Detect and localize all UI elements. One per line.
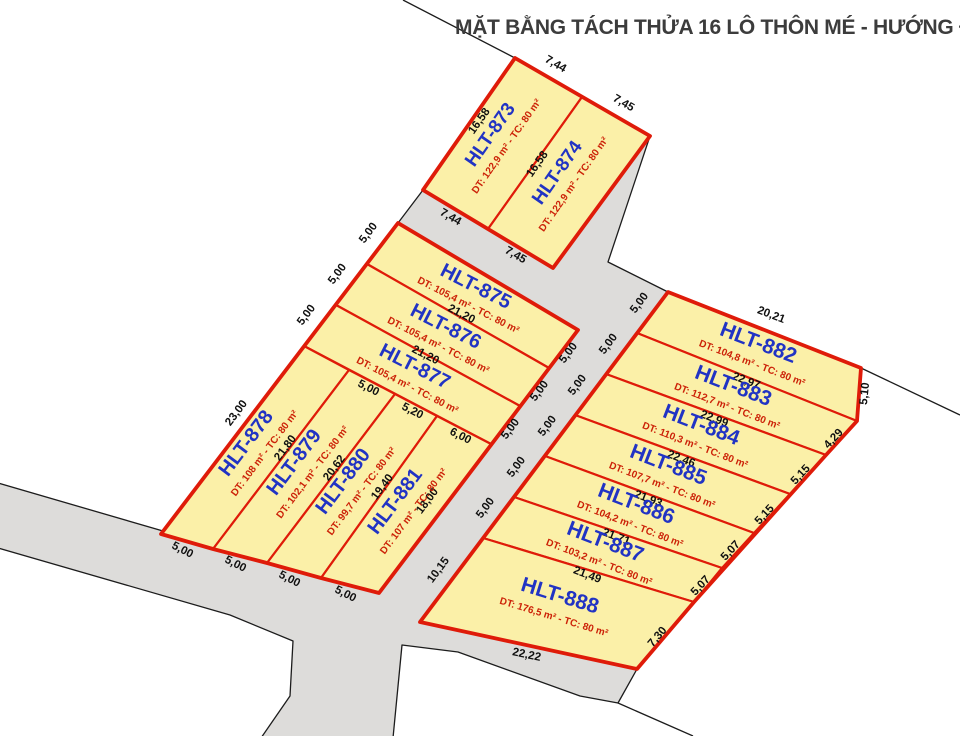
dim-label-1: 7,45 [611,93,637,115]
dim-label-7: 5,00 [326,262,349,287]
dim-label-0: 7,44 [543,54,569,76]
dim-label-8: 5,00 [295,303,318,328]
dim-label-6: 5,00 [357,221,380,246]
dim-label-26: 20,21 [755,304,787,326]
plan-canvas: 7,447,4516,5816,587,447,455,005,005,0023… [0,0,960,736]
boundary-bottom [618,703,693,736]
boundary-right [861,368,960,415]
plan-title: MẶT BẰNG TÁCH THỬA 16 LÔ THÔN MÉ - HƯỚNG… [455,16,960,40]
cadastral-plan: 7,447,4516,5816,587,447,455,005,005,0023… [0,0,960,736]
dim-label-27: 5,10 [858,382,872,406]
